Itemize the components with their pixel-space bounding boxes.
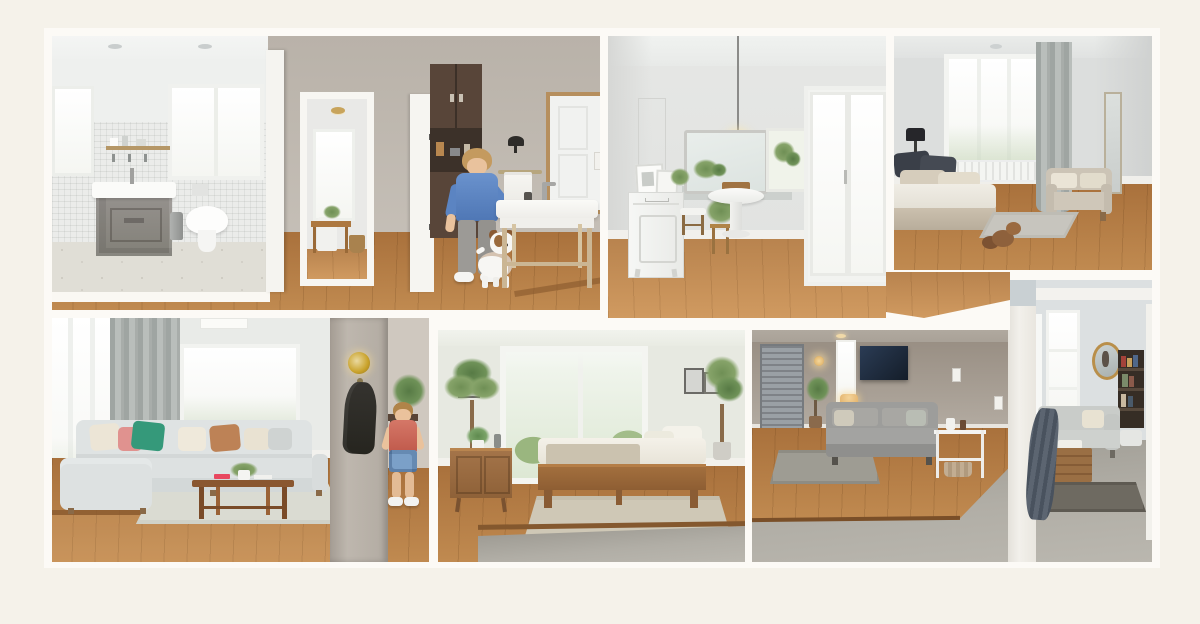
child-pants — [458, 220, 476, 274]
child-shoe — [454, 272, 474, 282]
child-shoe — [388, 497, 403, 506]
coffee-table — [192, 462, 294, 520]
child-shirt — [456, 173, 498, 221]
vase-flowers — [670, 168, 690, 186]
dark-rug — [1044, 482, 1146, 512]
white-etagere — [934, 418, 986, 478]
stool-with-cushion — [678, 208, 708, 236]
bathroom-window-right — [168, 84, 264, 180]
light-switch — [594, 152, 600, 170]
vessel-sink — [92, 182, 176, 198]
console-washstand — [496, 182, 600, 294]
ottoman — [1120, 430, 1142, 446]
trash-can — [170, 212, 183, 240]
opening-header — [1036, 288, 1152, 300]
pillow-cream — [178, 427, 206, 451]
bathroom-threshold — [52, 292, 270, 302]
recessed-light — [836, 334, 846, 338]
child-shirt — [389, 420, 417, 452]
child-shorts — [389, 450, 417, 472]
pillow-green — [131, 420, 166, 451]
nook-floor — [307, 249, 367, 279]
wall-sconce — [504, 136, 528, 152]
sunroom — [1036, 280, 1152, 562]
nook-plant — [323, 205, 341, 219]
sofa-pillow — [906, 410, 926, 426]
red-book — [214, 474, 230, 479]
ceiling-light — [198, 44, 212, 49]
door-frame — [266, 50, 284, 292]
plush-dog-toy — [982, 222, 1024, 252]
panel-dining-room — [608, 36, 886, 318]
table-top — [192, 480, 294, 487]
hanging-coat — [342, 381, 378, 455]
brass-sconce — [348, 352, 370, 374]
bathroom-scene — [52, 36, 268, 292]
child-shoe — [404, 497, 419, 506]
pillow-cream — [244, 428, 270, 450]
pillow-tan — [209, 424, 241, 453]
plant-pot — [713, 442, 731, 460]
vanity-cabinet — [96, 194, 172, 256]
recessed-light — [990, 44, 1002, 49]
gray-sofa — [826, 402, 938, 466]
sofa-pillow — [834, 410, 854, 426]
basket — [944, 462, 972, 477]
flush-plate — [192, 184, 208, 196]
wall-tv — [860, 346, 908, 380]
dining-nook-doorway — [300, 92, 374, 286]
bedroom-window — [944, 54, 1046, 166]
ceiling-light — [200, 318, 248, 329]
nook-ceiling-light — [331, 107, 345, 114]
washstand-top — [496, 200, 598, 218]
light-switch — [952, 368, 961, 382]
collage-canvas — [0, 0, 1200, 624]
light-switch — [994, 396, 1003, 410]
mid-century-console — [450, 426, 512, 512]
chaise — [60, 458, 152, 510]
panel-guest-bedroom — [438, 330, 745, 562]
louvered-door — [760, 344, 804, 442]
bed-platform — [894, 208, 996, 230]
builtin-bookshelf — [1118, 350, 1144, 428]
bathroom-window-left — [52, 86, 94, 176]
basket — [349, 235, 365, 253]
child-red-shirt — [384, 402, 422, 508]
bathroom-shelf — [106, 146, 170, 150]
pillow-cream — [89, 423, 121, 452]
panel-bedroom — [894, 36, 1152, 270]
sofa-pillow — [1082, 410, 1104, 428]
ceiling-light — [108, 44, 122, 49]
pedestal-table — [708, 182, 764, 248]
pillow-gray — [268, 428, 292, 450]
daybed-frame — [538, 464, 706, 490]
daybed — [538, 426, 708, 512]
panel-living-room — [52, 318, 429, 562]
warm-sconce — [814, 356, 824, 366]
opening-frame — [1146, 304, 1152, 540]
panel-bathroom-hallway — [52, 36, 600, 310]
sliding-glass-doors — [804, 86, 886, 286]
faucet — [130, 168, 134, 184]
white-dresser — [628, 192, 684, 278]
